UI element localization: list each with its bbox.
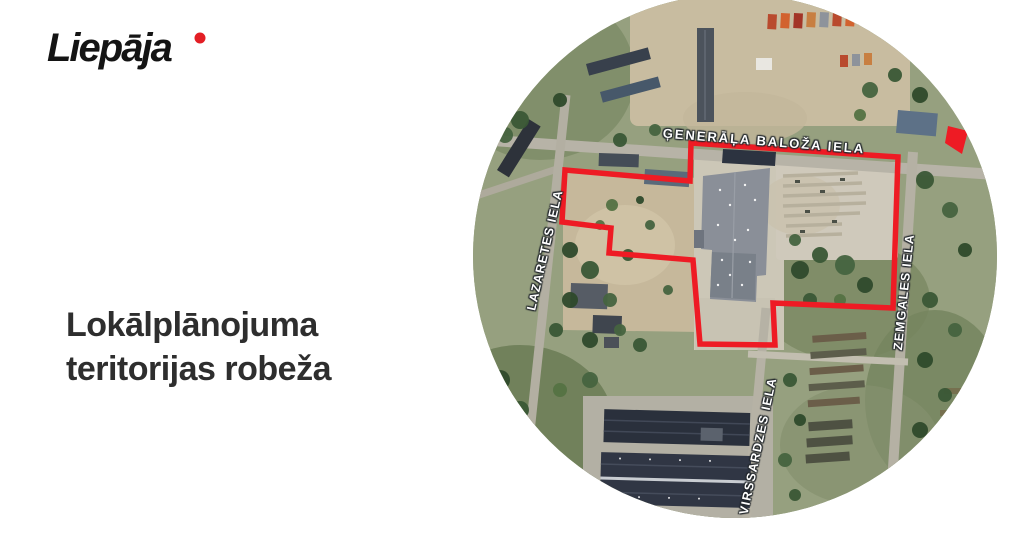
page-title: Lokālplānojuma teritorijas robeža — [66, 303, 331, 391]
slide: Liepāja Lokālplānojuma teritorijas robež… — [0, 0, 1024, 538]
warehouses — [600, 409, 752, 508]
satellite-map: ĢENERĀĻA BALOŽA IELA LAZARETES IELA ZEMG… — [473, 0, 997, 518]
logo-dot-icon — [194, 32, 206, 44]
satellite-scene — [473, 0, 997, 518]
logo-text: Liepāja — [47, 22, 171, 74]
title-line-1: Lokālplānojuma — [66, 303, 331, 347]
title-line-2: teritorijas robeža — [66, 347, 331, 391]
liepaja-logo: Liepāja — [47, 22, 267, 82]
